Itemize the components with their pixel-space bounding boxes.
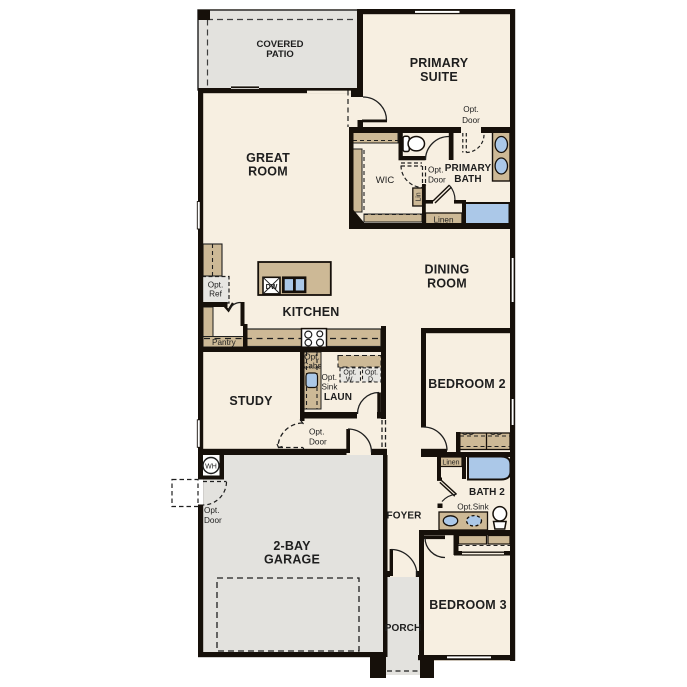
svg-text:Sink: Sink [322, 383, 339, 392]
svg-text:Cabs: Cabs [302, 362, 321, 371]
svg-text:Ref: Ref [209, 290, 222, 299]
svg-text:Opt.: Opt. [309, 428, 324, 437]
svg-text:BATH: BATH [454, 174, 481, 185]
svg-text:STUDY: STUDY [229, 394, 273, 408]
svg-text:Opt.: Opt. [204, 506, 219, 515]
svg-text:Door: Door [309, 438, 327, 447]
svg-text:2-BAY: 2-BAY [273, 539, 311, 553]
svg-text:Door: Door [462, 116, 480, 125]
svg-text:W.: W. [346, 377, 354, 384]
svg-text:Opt.: Opt. [322, 373, 337, 382]
svg-text:ROOM: ROOM [427, 277, 467, 291]
svg-text:SUITE: SUITE [420, 70, 458, 84]
svg-text:DINING: DINING [425, 263, 470, 277]
svg-text:Opt.: Opt. [463, 105, 478, 114]
svg-text:GARAGE: GARAGE [264, 553, 320, 567]
svg-text:PRIMARY: PRIMARY [445, 163, 492, 174]
svg-text:Opt.: Opt. [343, 370, 356, 377]
svg-text:Door: Door [428, 176, 446, 185]
svg-text:Lin: Lin [416, 192, 423, 201]
svg-text:LAUN: LAUN [324, 392, 352, 403]
svg-text:PATIO: PATIO [266, 49, 294, 60]
svg-text:Opt.: Opt. [428, 166, 443, 175]
svg-text:PORCH: PORCH [385, 623, 422, 634]
svg-text:FOYER: FOYER [387, 511, 423, 522]
svg-text:ROOM: ROOM [248, 165, 288, 179]
svg-text:BEDROOM 3: BEDROOM 3 [429, 598, 507, 612]
svg-text:Linen: Linen [442, 459, 459, 466]
svg-text:WIC: WIC [376, 175, 395, 186]
svg-text:Pantry: Pantry [212, 338, 237, 347]
svg-text:KITCHEN: KITCHEN [283, 305, 340, 319]
svg-text:D.: D. [368, 377, 375, 384]
svg-text:Opt.: Opt. [304, 353, 319, 362]
svg-text:Door: Door [204, 516, 222, 525]
svg-text:BATH 2: BATH 2 [469, 487, 505, 498]
svg-text:Opt.: Opt. [365, 370, 378, 377]
svg-text:PRIMARY: PRIMARY [410, 56, 469, 70]
svg-text:GREAT: GREAT [246, 151, 290, 165]
svg-text:Opt.: Opt. [208, 281, 223, 290]
svg-text:WH: WH [205, 463, 217, 470]
svg-text:BEDROOM 2: BEDROOM 2 [428, 377, 506, 391]
svg-text:Opt.Sink: Opt.Sink [457, 503, 489, 512]
svg-text:DW: DW [266, 284, 278, 291]
